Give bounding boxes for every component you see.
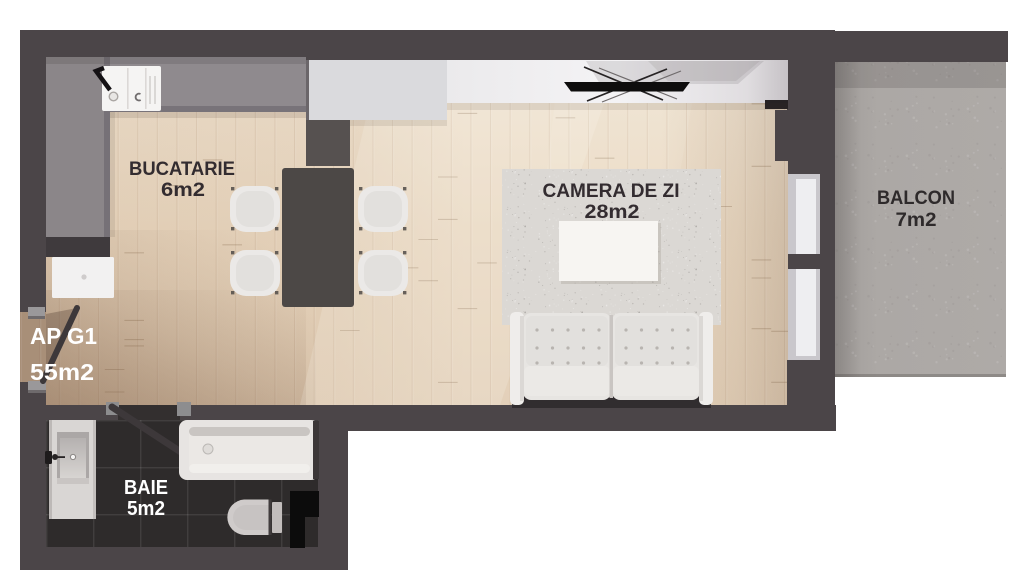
svg-text:AP G1: AP G1 bbox=[30, 323, 97, 349]
svg-text:BUCATARIE: BUCATARIE bbox=[129, 159, 235, 180]
svg-text:7m2: 7m2 bbox=[896, 209, 937, 231]
svg-text:BALCON: BALCON bbox=[877, 187, 955, 209]
svg-text:28m2: 28m2 bbox=[585, 201, 640, 223]
svg-text:CAMERA DE ZI: CAMERA DE ZI bbox=[543, 180, 680, 202]
svg-text:55m2: 55m2 bbox=[30, 359, 94, 385]
svg-text:6m2: 6m2 bbox=[161, 180, 205, 201]
svg-text:BAIE: BAIE bbox=[124, 477, 168, 499]
svg-text:5m2: 5m2 bbox=[127, 498, 165, 520]
